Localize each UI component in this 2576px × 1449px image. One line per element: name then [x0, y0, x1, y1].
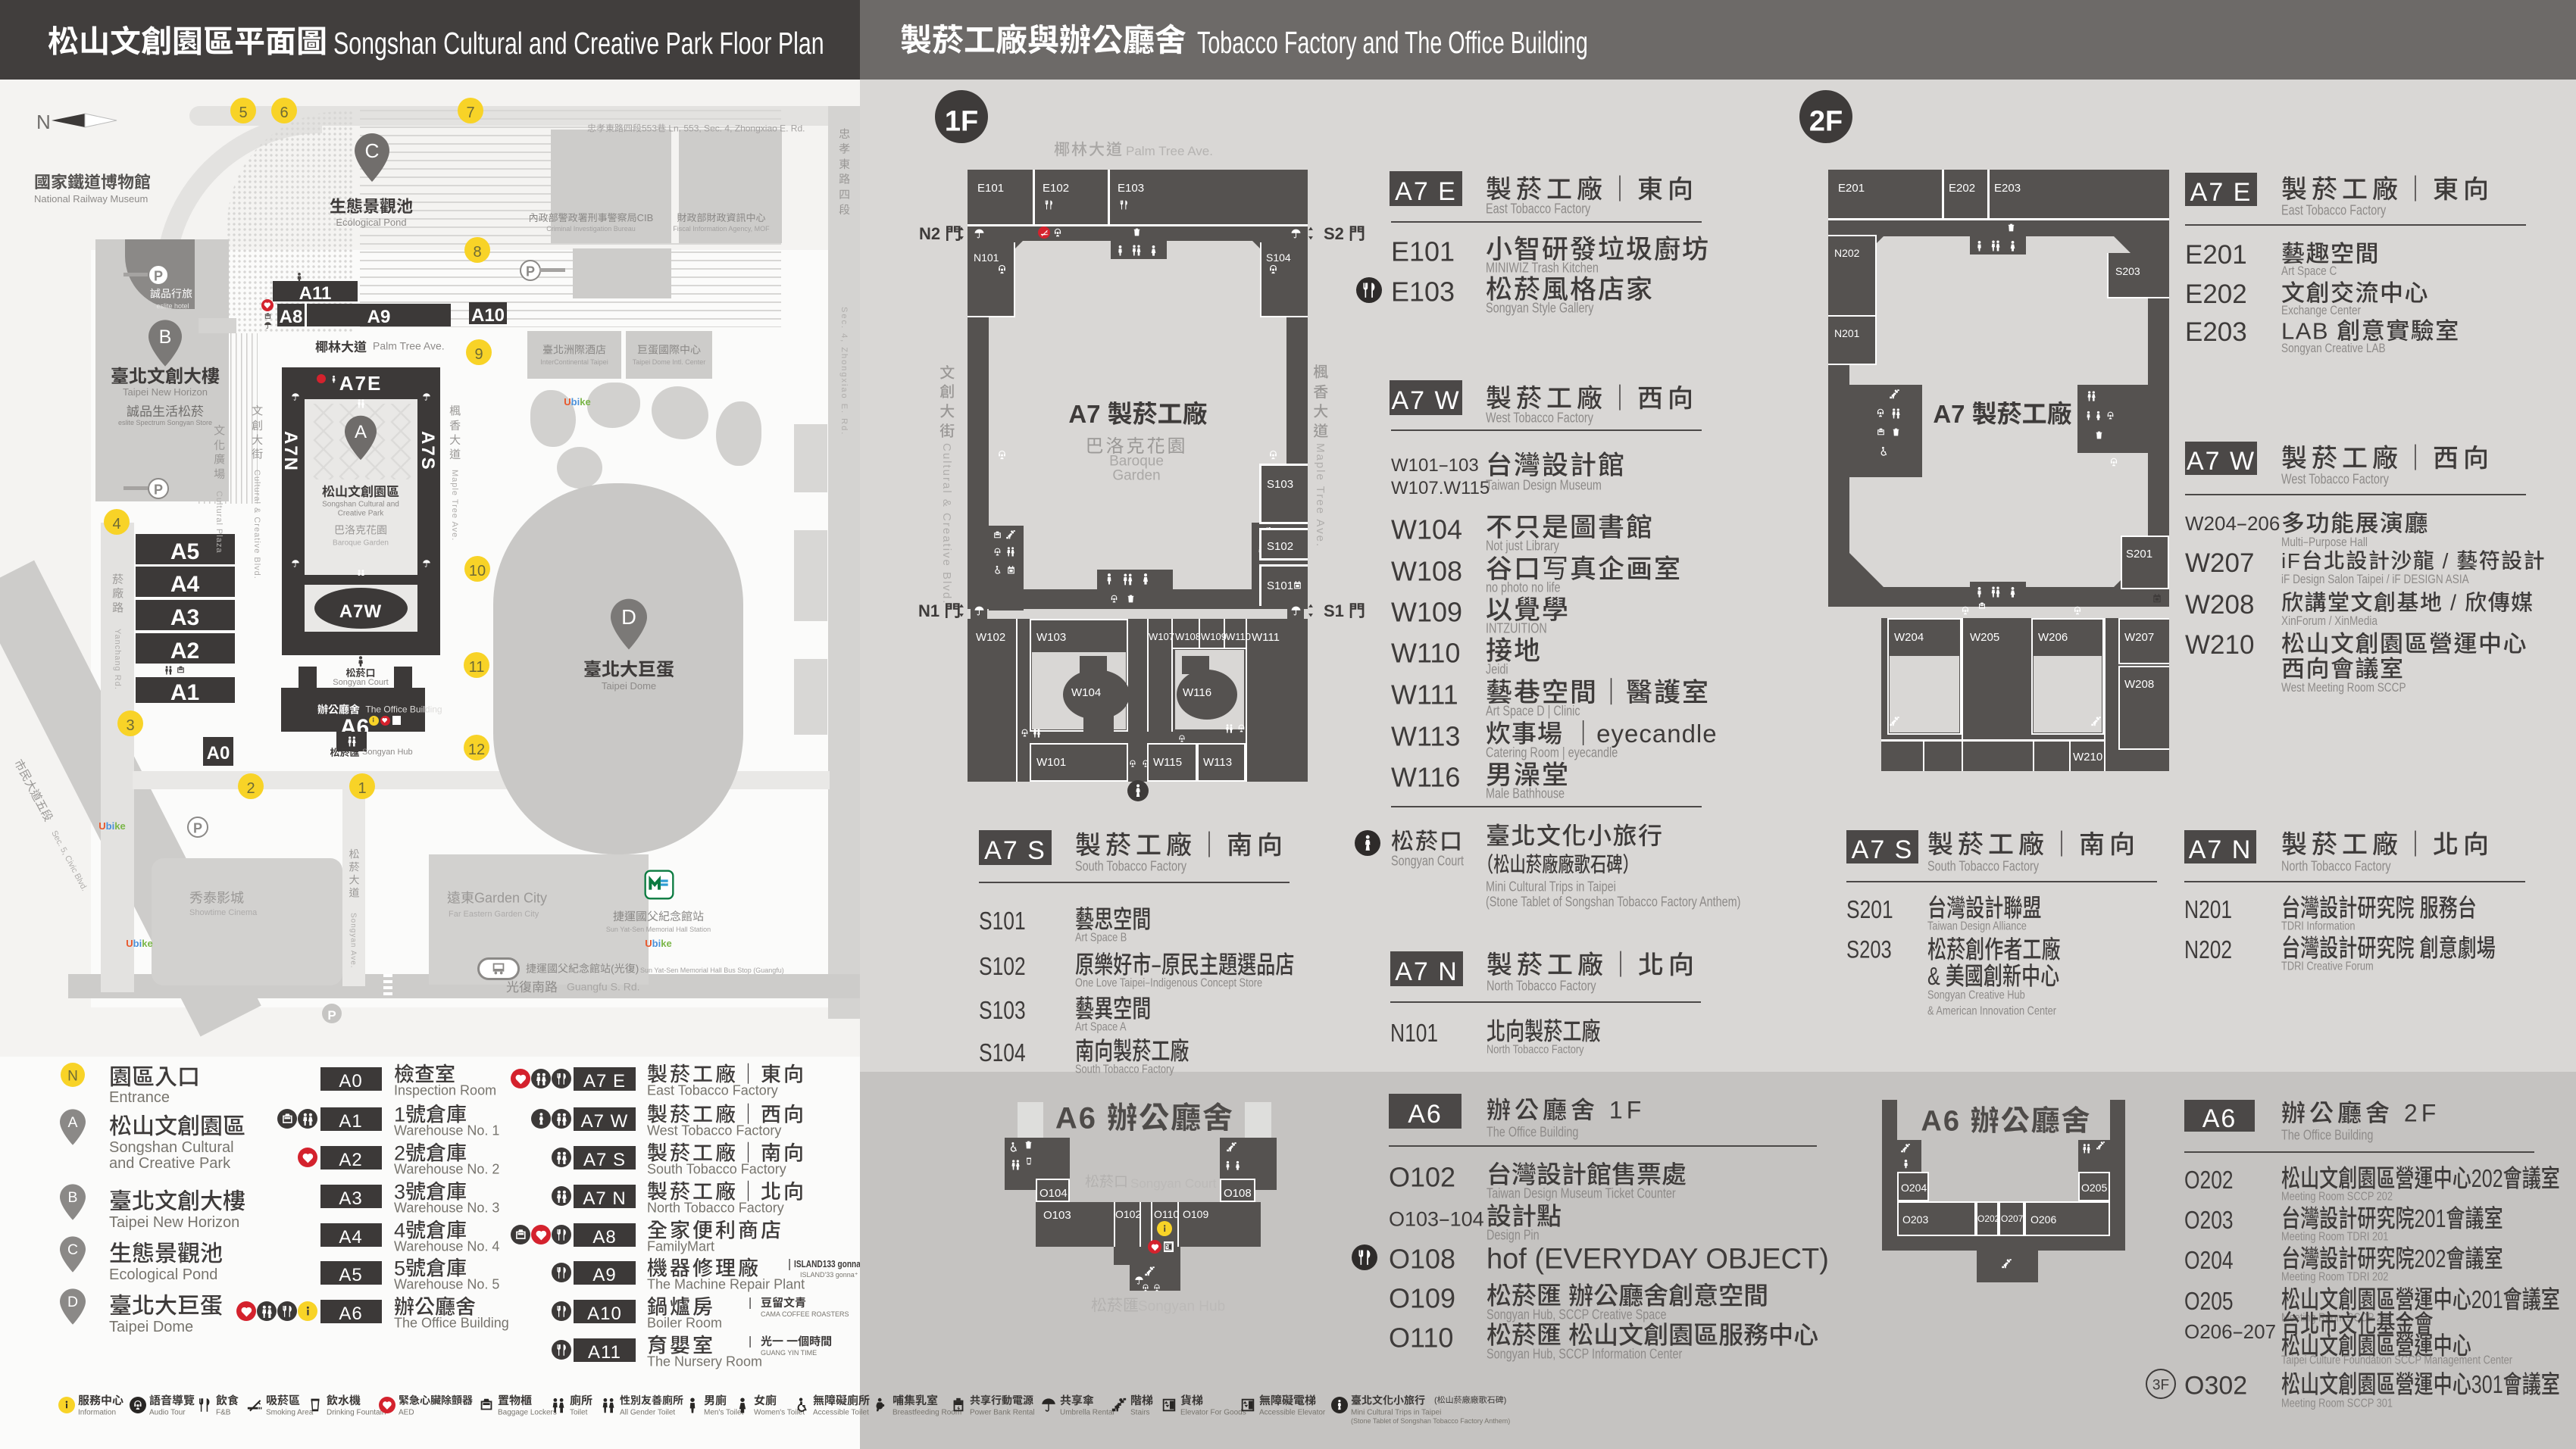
- svg-text:B: B: [159, 326, 172, 348]
- svg-text:D: D: [67, 1294, 78, 1310]
- svg-text:A: A: [355, 422, 367, 442]
- svg-text:A: A: [68, 1114, 78, 1131]
- svg-text:C: C: [67, 1241, 78, 1258]
- svg-text:D: D: [621, 605, 636, 629]
- svg-text:C: C: [365, 139, 380, 162]
- svg-text:B: B: [68, 1189, 78, 1206]
